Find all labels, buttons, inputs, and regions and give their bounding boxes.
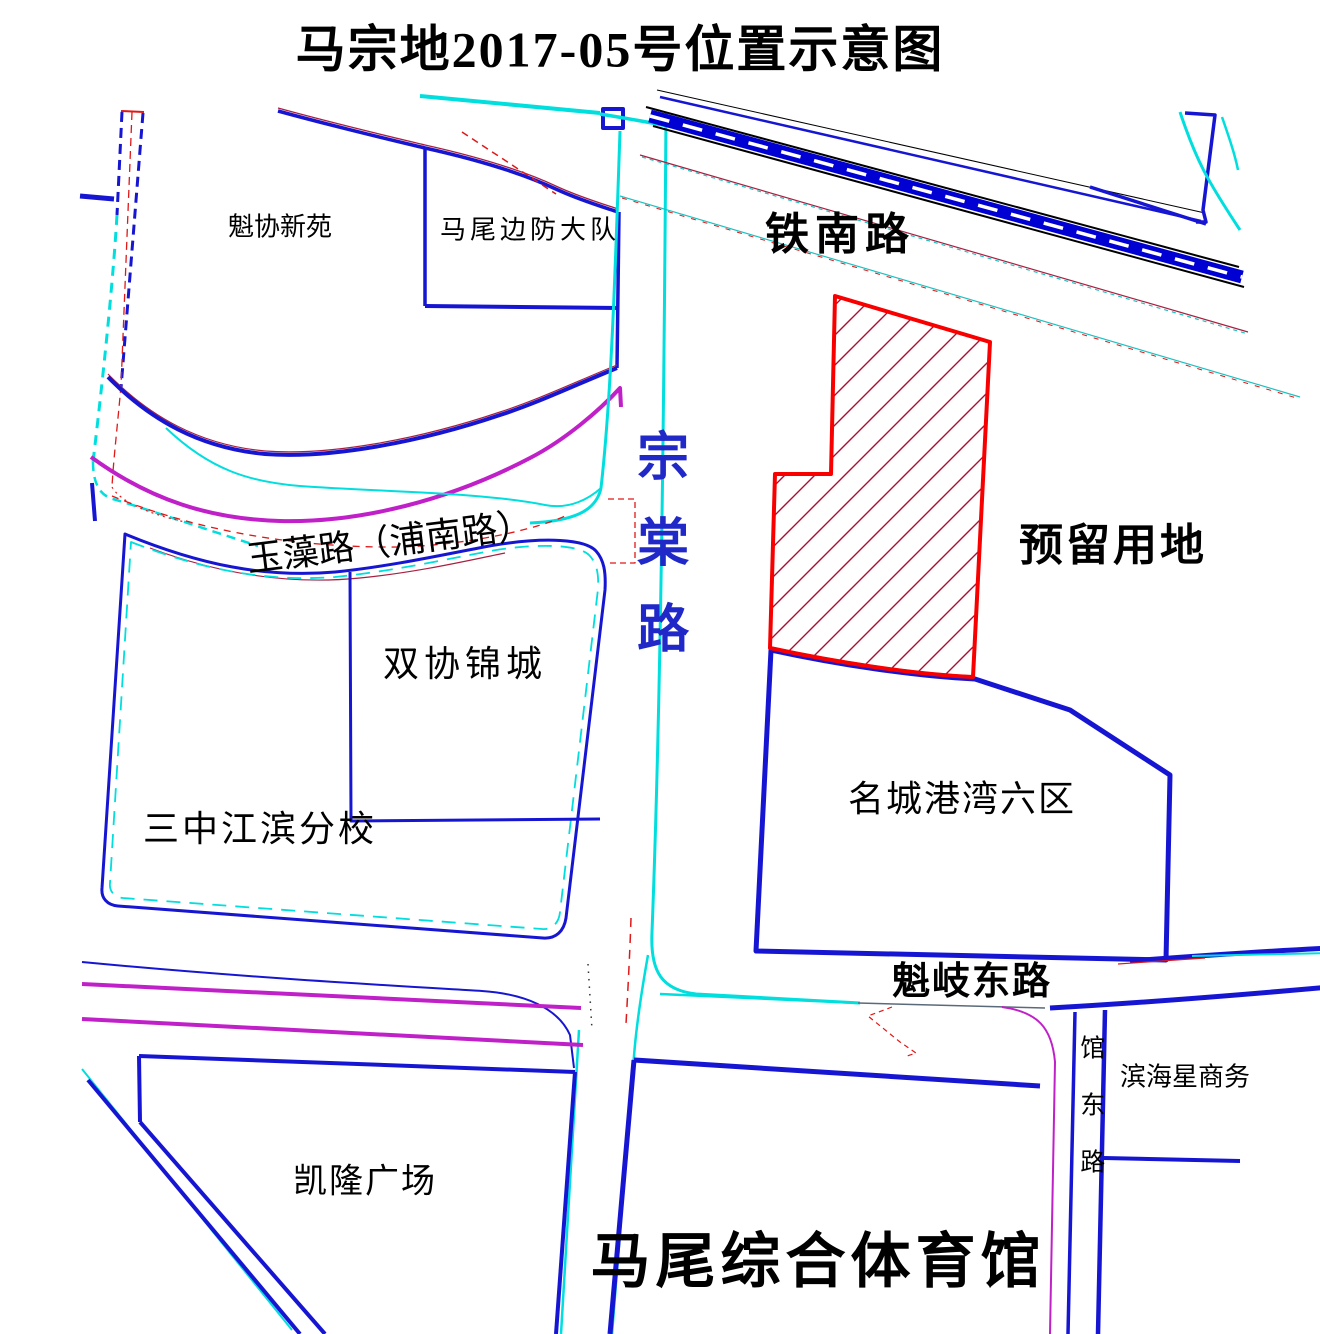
label-zongtang-lu: 宗棠路	[628, 429, 685, 687]
label-kailong-guangchang: 凯隆广场	[293, 1163, 437, 1200]
label-mawei-zonghe-tiyuguan: 马尾综合体育馆	[591, 1229, 1046, 1295]
label-shuangxie-jincheng: 双协锦城	[383, 645, 547, 685]
label-tienan-lu: 铁南路	[765, 211, 915, 259]
label-kuixie-xinyuan: 魁协新苑	[228, 214, 332, 243]
kuiqi-road-west	[82, 962, 583, 1334]
location-map-page: 马宗地2017-05号位置示意图 魁协新苑 马尾边防大队 铁南路 预留用地 宗棠…	[0, 0, 1320, 1334]
label-mawei-bianfang-dadui: 马尾边防大队	[440, 217, 620, 246]
parcel-2017-05	[770, 296, 990, 677]
railway-band	[646, 90, 1244, 287]
label-kuiqi-dong-lu: 魁岐东路	[892, 962, 1052, 1004]
west-slanted-road	[80, 111, 258, 546]
sanzhong-block	[102, 534, 605, 938]
zongtang-road	[420, 96, 860, 1334]
label-binhaixing-shangwu: 滨海星商务	[1120, 1064, 1250, 1093]
page-title: 马宗地2017-05号位置示意图	[296, 23, 945, 78]
label-mingcheng-gangwan-liuqu: 名城港湾六区	[848, 780, 1076, 820]
dip-boundary-curves	[91, 365, 621, 521]
label-yuliu-yongdi: 预留用地	[1019, 522, 1207, 570]
top-right-boundaries	[1090, 112, 1240, 230]
label-sanzhong-jiangbin-fenxiao: 三中江滨分校	[143, 810, 377, 850]
label-guandong-lu: 馆东路	[1076, 1035, 1104, 1206]
